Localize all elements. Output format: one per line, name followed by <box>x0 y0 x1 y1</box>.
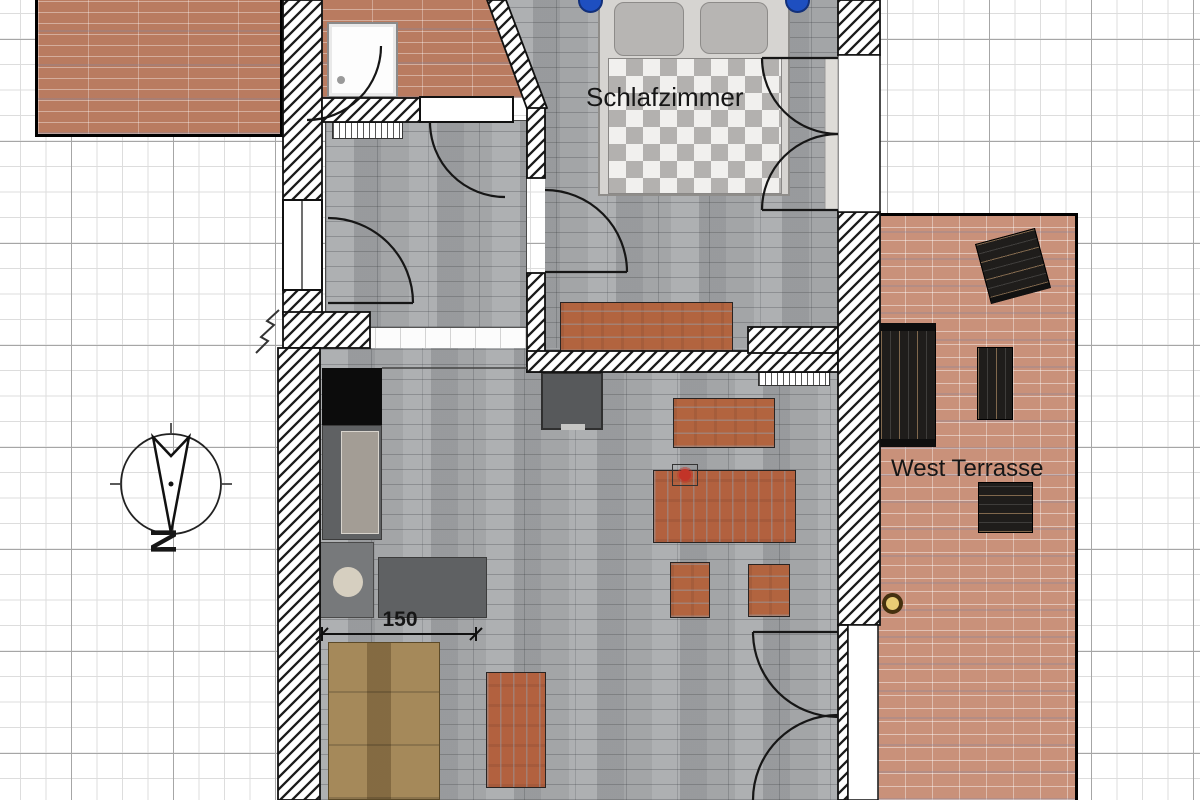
bedroom-label: Schlafzimmer <box>586 82 743 113</box>
coffee-table <box>486 672 546 788</box>
terrace-side-table <box>977 347 1013 420</box>
pillow-left <box>614 2 684 56</box>
compass-north-label: N <box>142 528 184 554</box>
compass-center-dot <box>169 482 174 487</box>
stool-2 <box>748 564 790 617</box>
wall-niche <box>420 97 513 122</box>
door-knob <box>882 593 903 614</box>
terrace-label: West Terrasse <box>891 455 1044 483</box>
flower-pot <box>672 464 698 486</box>
radiator-hall <box>332 122 403 139</box>
wall-right-door-frame <box>838 625 848 800</box>
kitchen-cabinet-door <box>341 431 379 534</box>
wall-left-lower <box>278 348 320 800</box>
shower-drain <box>337 76 345 84</box>
kitchen-sink-unit <box>320 542 374 618</box>
sideboard <box>560 302 733 352</box>
bedroom-door-opening <box>838 55 880 212</box>
compass-circle <box>121 434 221 534</box>
kitchen-cabinet <box>322 425 382 540</box>
wall-hall-top <box>322 98 420 122</box>
wall-right-middle <box>838 212 880 625</box>
compass-rose <box>110 423 232 534</box>
sofa <box>328 642 440 800</box>
dimension-150-label: 150 <box>370 608 430 632</box>
wall-left-upper <box>283 0 322 200</box>
wall-left-under-window <box>283 290 322 314</box>
bed-duvet <box>608 58 782 194</box>
roof-tile-area <box>35 0 283 137</box>
bench-top <box>673 398 775 448</box>
chair-mark <box>561 424 585 430</box>
stool-1 <box>670 562 710 618</box>
wall-right-top <box>838 0 880 55</box>
floor-plan: Schlafzimmer West Terrasse 150 N <box>0 0 1200 800</box>
compass-needle <box>153 437 189 533</box>
window-left <box>283 200 322 290</box>
wall-corridor-upper <box>527 108 545 178</box>
lounger-left <box>880 323 936 447</box>
radiator-living <box>758 372 830 386</box>
pillow-right <box>700 2 768 54</box>
square-table-dark <box>541 372 603 430</box>
sink-basin <box>333 567 363 597</box>
terrace-bench <box>978 482 1033 533</box>
kitchen-appliance-black <box>322 368 382 425</box>
section-break-squiggle <box>256 310 279 353</box>
terrace-door-opening <box>848 625 878 800</box>
shower-tray <box>327 22 398 98</box>
hall-room-floor <box>325 120 527 327</box>
